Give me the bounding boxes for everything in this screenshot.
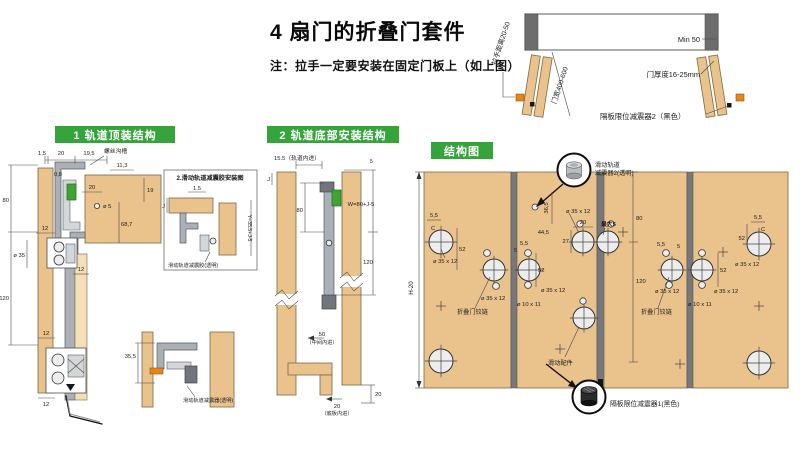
dim: 20 [334,404,340,410]
dim: ø 35 x 12 [433,259,457,265]
callout-bottom-label: 隔板限位减震器1(黑色) [610,399,679,408]
dim: 5,5 [657,242,665,248]
dim: C [431,226,435,232]
door-thickness-label: 门厚度16-25mm [647,70,700,79]
dim: ø 35 x 12 [735,262,759,268]
section1-drawing: 1,5 20 19,5 螺丝沟槽 11,3 0,8 20 19 ø 5 68,7… [0,140,258,450]
top-board [85,175,161,243]
dim: 5 [370,159,373,165]
dim: 12 [42,226,48,232]
dim: 36,5 [544,202,550,213]
door-width-label: 门宽400-600 [549,65,570,105]
height-dimension [415,172,424,388]
dim: 35,5 [125,354,136,360]
dim: 5 [514,248,517,254]
dim: 80 [297,208,303,214]
dim: 68,7 [121,222,132,228]
dim: W=80+J-5 [348,202,375,208]
section2-drawing: 15.5（轨道内进） J 80 5 W=80+J-5 120 50 （中间内进）… [258,140,423,450]
page-title: 4 扇门的折叠门套件 [270,16,520,46]
dim: 20 [580,220,586,226]
panel-gap-middle [597,172,604,388]
dim: 20 [375,392,381,398]
hinge-label: 折叠门铰链 [457,308,489,316]
dim: 12 [43,402,49,408]
dim: 52 [720,268,726,274]
dim-note: （底板内进） [321,409,352,417]
dim: 20 [89,185,95,191]
dim: 5 [677,244,680,250]
dim: ø 10 x 11 [517,302,541,308]
hinge-bottom [46,348,86,393]
dim: 80 [3,198,9,204]
bottom-board [288,363,332,375]
dim: 5,5 [520,241,528,247]
dim: 19 [147,188,153,194]
dim: 50 [319,332,325,338]
dim: J [267,177,270,183]
dim: 44,5 [538,230,549,236]
bottom-track [320,182,341,309]
dim: 19,5 [83,151,94,157]
left-door-handle [516,94,524,101]
dim: 5,5 [754,215,762,221]
panel-gap-1 [511,172,517,388]
inset-damper-rubber: 2.滑动轨道减震胶安装图 1.5 J Y=35.5+J-5 滑动轨道减震胶(透明… [162,170,257,270]
dim: 5,5 [430,213,438,219]
slide-fitting-label: 滑动配件 [548,359,573,367]
track-clip-green [332,190,341,206]
dim: 27 [563,239,569,245]
bottom-leg [320,375,332,395]
dim: 52 [459,247,465,253]
top-track-bar [525,14,718,50]
dim: Y=35.5+J-5 [246,215,252,242]
dim: J [162,204,165,210]
damper2-label: 隔板限位减震器2（黑色） [600,112,685,121]
dim: ø 35 x 12 [541,288,565,294]
dim: 52 [538,268,544,274]
dim: 11,3 [117,163,128,169]
handle-distance-label: 拉手距离20-50 [489,20,511,65]
dim: ø 35 [13,253,25,259]
dim: ø 35 x 12 [481,296,505,302]
hinge-label: 折叠门铰链 [641,308,673,316]
dim: 12 [43,331,49,337]
page-note: 注：拉手一定要安装在固定门板上（如上图） [270,57,520,74]
left-damper-dot [530,102,535,107]
dim: ø 35 x 12 [566,209,590,215]
track-screw [94,203,99,208]
hinge-top [47,238,77,268]
callout-top-label-2: 减震器2(透明) [595,169,634,177]
dim: 1,5 [38,151,46,157]
panel-gap-2 [687,172,693,388]
detail-label: 滑动轨道减震器(透明) [183,396,233,404]
detail-track-damper: 35,5 滑动轨道减震器(透明) [125,332,234,407]
dim: ø 10 x 11 [688,302,712,308]
callout-top-label-1: 滑动轨道 [595,161,620,169]
right-door-handle [736,94,744,101]
dim: C [761,227,765,233]
dim: 最大5 [601,220,617,228]
dim: 120 [636,279,646,285]
screw-groove-label: 螺丝沟槽 [104,147,127,155]
title-block: 4 扇门的折叠门套件 注：拉手一定要安装在固定门板上（如上图） [270,16,520,74]
dim: 0,8 [54,172,62,178]
dim: ø 5 [103,204,111,210]
overview-diagram: 拉手距离20-50 门宽400-600 Min 50 门厚度16-25mm 隔板… [490,0,800,140]
track-damper-green [67,184,76,200]
right-damper-dot [727,103,732,108]
dim: ø 35 x 12 [655,289,679,295]
inset-label: 滑动轨道减震胶(透明) [168,261,218,269]
dim: H-20 [408,281,415,295]
inset-title: 2.滑动轨道减震胶安装图 [176,174,243,182]
dim: 120 [0,296,9,302]
dim: 1.5 [193,186,201,192]
left-board [275,172,298,395]
left-door-pair [522,55,552,118]
dim-note: （中间内进） [306,338,337,346]
dim: 15.5（轨道内进） [274,154,320,162]
dim: 20 [58,151,64,157]
min-gap-label: Min 50 [678,35,700,44]
dim: 12 [78,267,84,273]
section3-drawing: H-20 [405,140,800,450]
dim: 80 [636,216,642,222]
dim: 52 [739,236,745,242]
screw-orange [150,368,163,374]
dim: 120 [363,260,373,266]
dim: ø 35 x 12 [714,289,738,295]
